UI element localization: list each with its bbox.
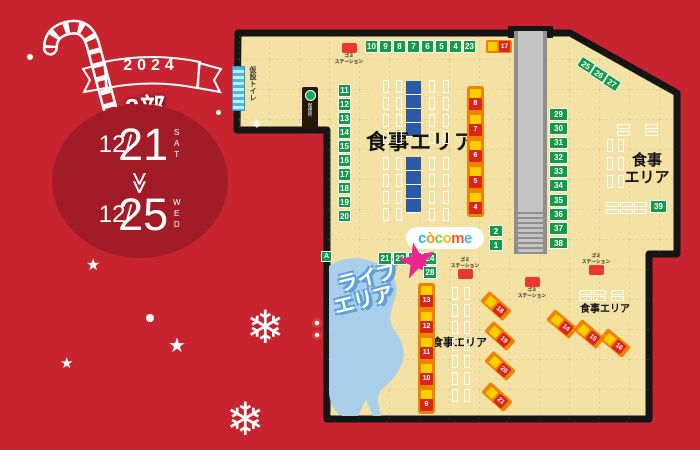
blue-table-block [406, 157, 421, 213]
truck-roof [421, 286, 432, 295]
table-marker [383, 131, 389, 144]
food-truck: 9 [420, 390, 433, 411]
truck-roof [470, 193, 481, 202]
table-marker [429, 80, 435, 93]
table-marker [396, 114, 402, 127]
table-marker [383, 97, 389, 110]
logo-letter: m [451, 230, 464, 247]
dining-right-line2: エリア [624, 169, 669, 186]
green-booth: 35 [549, 194, 568, 207]
truck-number: 10 [420, 373, 433, 385]
trash-station-icon [458, 269, 473, 279]
snowflake-icon: ❄ [226, 396, 265, 442]
green-booth: 30 [549, 122, 568, 135]
green-booth: 23 [463, 40, 476, 53]
entrance-a-badge: A [321, 251, 332, 262]
food-truck: 4 [469, 193, 482, 214]
trash-station-label: ゴミステーション [451, 257, 479, 268]
table-marker [634, 202, 647, 207]
table-marker [618, 139, 624, 152]
food-truck: 7 [469, 115, 482, 136]
food-truck: 6 [469, 141, 482, 162]
booth-column-right: 29303132333435363738 [549, 108, 568, 249]
table-marker [464, 355, 470, 368]
booth-pair-center: 21 [489, 225, 503, 251]
smoking-icon [305, 90, 316, 101]
green-booth: 5 [435, 40, 448, 53]
table-marker [452, 355, 458, 368]
green-booth: 34 [549, 179, 568, 192]
table-marker [606, 209, 619, 214]
green-booth: 39 [650, 200, 667, 213]
table-marker [443, 174, 449, 187]
table-marker [396, 174, 402, 187]
table-marker [443, 131, 449, 144]
logo-letter: e [464, 230, 472, 247]
logo-letter: ò [426, 230, 435, 247]
trash-station-label: ゴミステーション [518, 287, 546, 298]
table-marker [464, 321, 470, 334]
table-marker [464, 389, 470, 402]
snowflake-icon: ❄ [252, 118, 262, 130]
table-marker [618, 157, 624, 170]
snowflake-icon: ❄ [246, 304, 285, 350]
food-truck: 17 [486, 40, 512, 53]
dining-area-label-bottom-right: 食事エリア [580, 300, 630, 315]
table-marker [443, 157, 449, 170]
truck-roof [421, 338, 432, 347]
table-marker [443, 208, 449, 221]
green-booth: 19 [338, 196, 351, 209]
table-marker [452, 338, 458, 351]
table-marker [620, 202, 633, 207]
food-truck-strip-lower: 131211109 [418, 283, 435, 414]
map-edge-marker [312, 330, 322, 340]
table-marker [579, 296, 592, 301]
table-marker [611, 290, 624, 295]
portable-toilet-icon [232, 66, 245, 111]
table-marker [607, 157, 613, 170]
truck-number: 4 [469, 202, 482, 214]
green-booth: 9 [379, 40, 392, 53]
table-marker [617, 131, 630, 136]
truck-roof [488, 42, 497, 51]
table-marker [593, 290, 606, 295]
table-marker [607, 175, 613, 188]
star-icon: ★ [86, 258, 100, 274]
truck-number: 17 [499, 41, 510, 52]
table-marker [429, 157, 435, 170]
logo-letter: o [443, 230, 452, 247]
table-marker [464, 338, 470, 351]
truck-number: 11 [420, 347, 433, 359]
green-booth: 37 [549, 222, 568, 235]
green-booth: 2 [489, 225, 503, 237]
dining-right-line1: 食事 [632, 152, 662, 169]
table-marker [645, 124, 658, 129]
table-marker [452, 389, 458, 402]
table-marker [396, 157, 402, 170]
green-booth: 1 [489, 239, 503, 251]
green-booth: 31 [549, 137, 568, 150]
table-marker [607, 139, 613, 152]
green-booth: 20 [338, 210, 351, 223]
green-booth: 17 [338, 168, 351, 181]
smoking-area-marker: 喫煙所 [302, 87, 318, 129]
trash-station: ゴミステーション [331, 43, 367, 65]
green-booth: 29 [549, 108, 568, 121]
trash-label-line2: ステーション [451, 263, 479, 269]
table-marker [645, 131, 658, 136]
trash-station: ゴミステーション [578, 253, 614, 275]
star-icon: ★ [168, 336, 186, 356]
trash-station-label: ゴミステーション [335, 53, 363, 64]
table-marker [429, 191, 435, 204]
table-marker [606, 202, 619, 207]
table-marker [620, 209, 633, 214]
escalator-stairs [514, 31, 547, 254]
food-truck: 11 [420, 338, 433, 359]
table-marker [634, 209, 647, 214]
green-booth: 8 [393, 40, 406, 53]
trash-station: ゴミステーション [514, 277, 550, 299]
table-marker [618, 175, 624, 188]
toilet-label: 仮設トイレ [247, 66, 257, 101]
table-marker [429, 208, 435, 221]
smoking-label: 喫煙所 [307, 103, 313, 117]
green-booth: 14 [338, 126, 351, 139]
stair-steps [518, 212, 543, 254]
table-marker [452, 287, 458, 300]
table-marker [452, 372, 458, 385]
table-marker [464, 304, 470, 317]
table-marker [383, 157, 389, 170]
table-marker [452, 304, 458, 317]
truck-number: 13 [420, 295, 433, 307]
green-booth: 7 [407, 40, 420, 53]
star-icon: ★ [60, 356, 73, 371]
green-booth: 4 [449, 40, 462, 53]
trash-station-icon [589, 265, 604, 275]
table-marker [396, 97, 402, 110]
green-booth: 32 [549, 151, 568, 164]
table-marker [464, 287, 470, 300]
logo-letter: c [418, 230, 426, 247]
table-marker [383, 191, 389, 204]
dining-area-label-right: 食事 エリア [618, 152, 676, 187]
table-marker [383, 174, 389, 187]
dining-area-label-bottom-center: 食事エリア [432, 334, 487, 350]
food-truck: 10 [420, 364, 433, 385]
green-booth: 36 [549, 208, 568, 221]
logo-letter: c [435, 230, 443, 247]
truck-number: 6 [469, 150, 482, 162]
snow-dot [146, 314, 154, 322]
green-booth: 28 [423, 266, 437, 279]
table-marker [383, 208, 389, 221]
snow-dot [216, 110, 221, 115]
truck-roof [421, 312, 432, 321]
green-booth: 13 [338, 112, 351, 125]
table-marker [452, 321, 458, 334]
truck-number: 7 [469, 124, 482, 136]
truck-roof [470, 167, 481, 176]
green-booth: 33 [549, 165, 568, 178]
table-marker [396, 191, 402, 204]
table-marker [464, 372, 470, 385]
truck-roof [421, 364, 432, 373]
green-booth: 12 [338, 98, 351, 111]
table-marker [429, 114, 435, 127]
table-marker [396, 80, 402, 93]
trash-station-label: ゴミステーション [582, 253, 610, 264]
truck-roof [421, 390, 432, 399]
snow-dot [27, 54, 33, 60]
table-marker [611, 296, 624, 301]
food-truck: 12 [420, 312, 433, 333]
truck-roof [470, 115, 481, 124]
food-truck-strip-upper: 87654 [467, 86, 484, 217]
trash-station-icon [342, 43, 357, 53]
booth-column-left: 11121314151617181920 [338, 84, 351, 222]
food-truck: 5 [469, 167, 482, 188]
table-marker [383, 80, 389, 93]
green-booth: 16 [338, 154, 351, 167]
table-marker [443, 97, 449, 110]
table-marker [429, 97, 435, 110]
table-marker [579, 290, 592, 295]
green-booth: 11 [338, 84, 351, 97]
truck-number: 8 [469, 98, 482, 110]
table-marker [429, 174, 435, 187]
map-edge-marker [312, 318, 322, 328]
trash-label-line2: ステーション [335, 59, 363, 65]
green-booth: 15 [338, 140, 351, 153]
truck-roof [470, 141, 481, 150]
food-truck: 8 [469, 89, 482, 110]
table-marker [396, 131, 402, 144]
truck-number: 5 [469, 176, 482, 188]
cocome-logo: còcome [406, 227, 484, 249]
green-booth: 38 [549, 237, 568, 250]
green-booth: 21 [378, 252, 392, 265]
trash-station-icon [525, 277, 540, 287]
booth-row-top: 1098765423 [365, 40, 476, 53]
truck-roof [470, 89, 481, 98]
table-marker [443, 191, 449, 204]
table-marker [383, 114, 389, 127]
green-booth: 18 [338, 182, 351, 195]
table-marker [443, 114, 449, 127]
table-marker [443, 80, 449, 93]
holiday-event-map-poster: 2024 2部 12/21 SAT ≫ 12/25 WED [0, 0, 700, 450]
trash-label-line2: ステーション [518, 293, 546, 299]
table-marker [617, 124, 630, 129]
food-truck: 13 [420, 286, 433, 307]
table-marker [593, 296, 606, 301]
truck-number: 12 [420, 321, 433, 333]
truck-number: 9 [420, 399, 433, 411]
table-marker [396, 208, 402, 221]
trash-station: ゴミステーション [447, 257, 483, 279]
trash-label-line2: ステーション [582, 259, 610, 265]
green-booth: 6 [421, 40, 434, 53]
table-marker [429, 131, 435, 144]
